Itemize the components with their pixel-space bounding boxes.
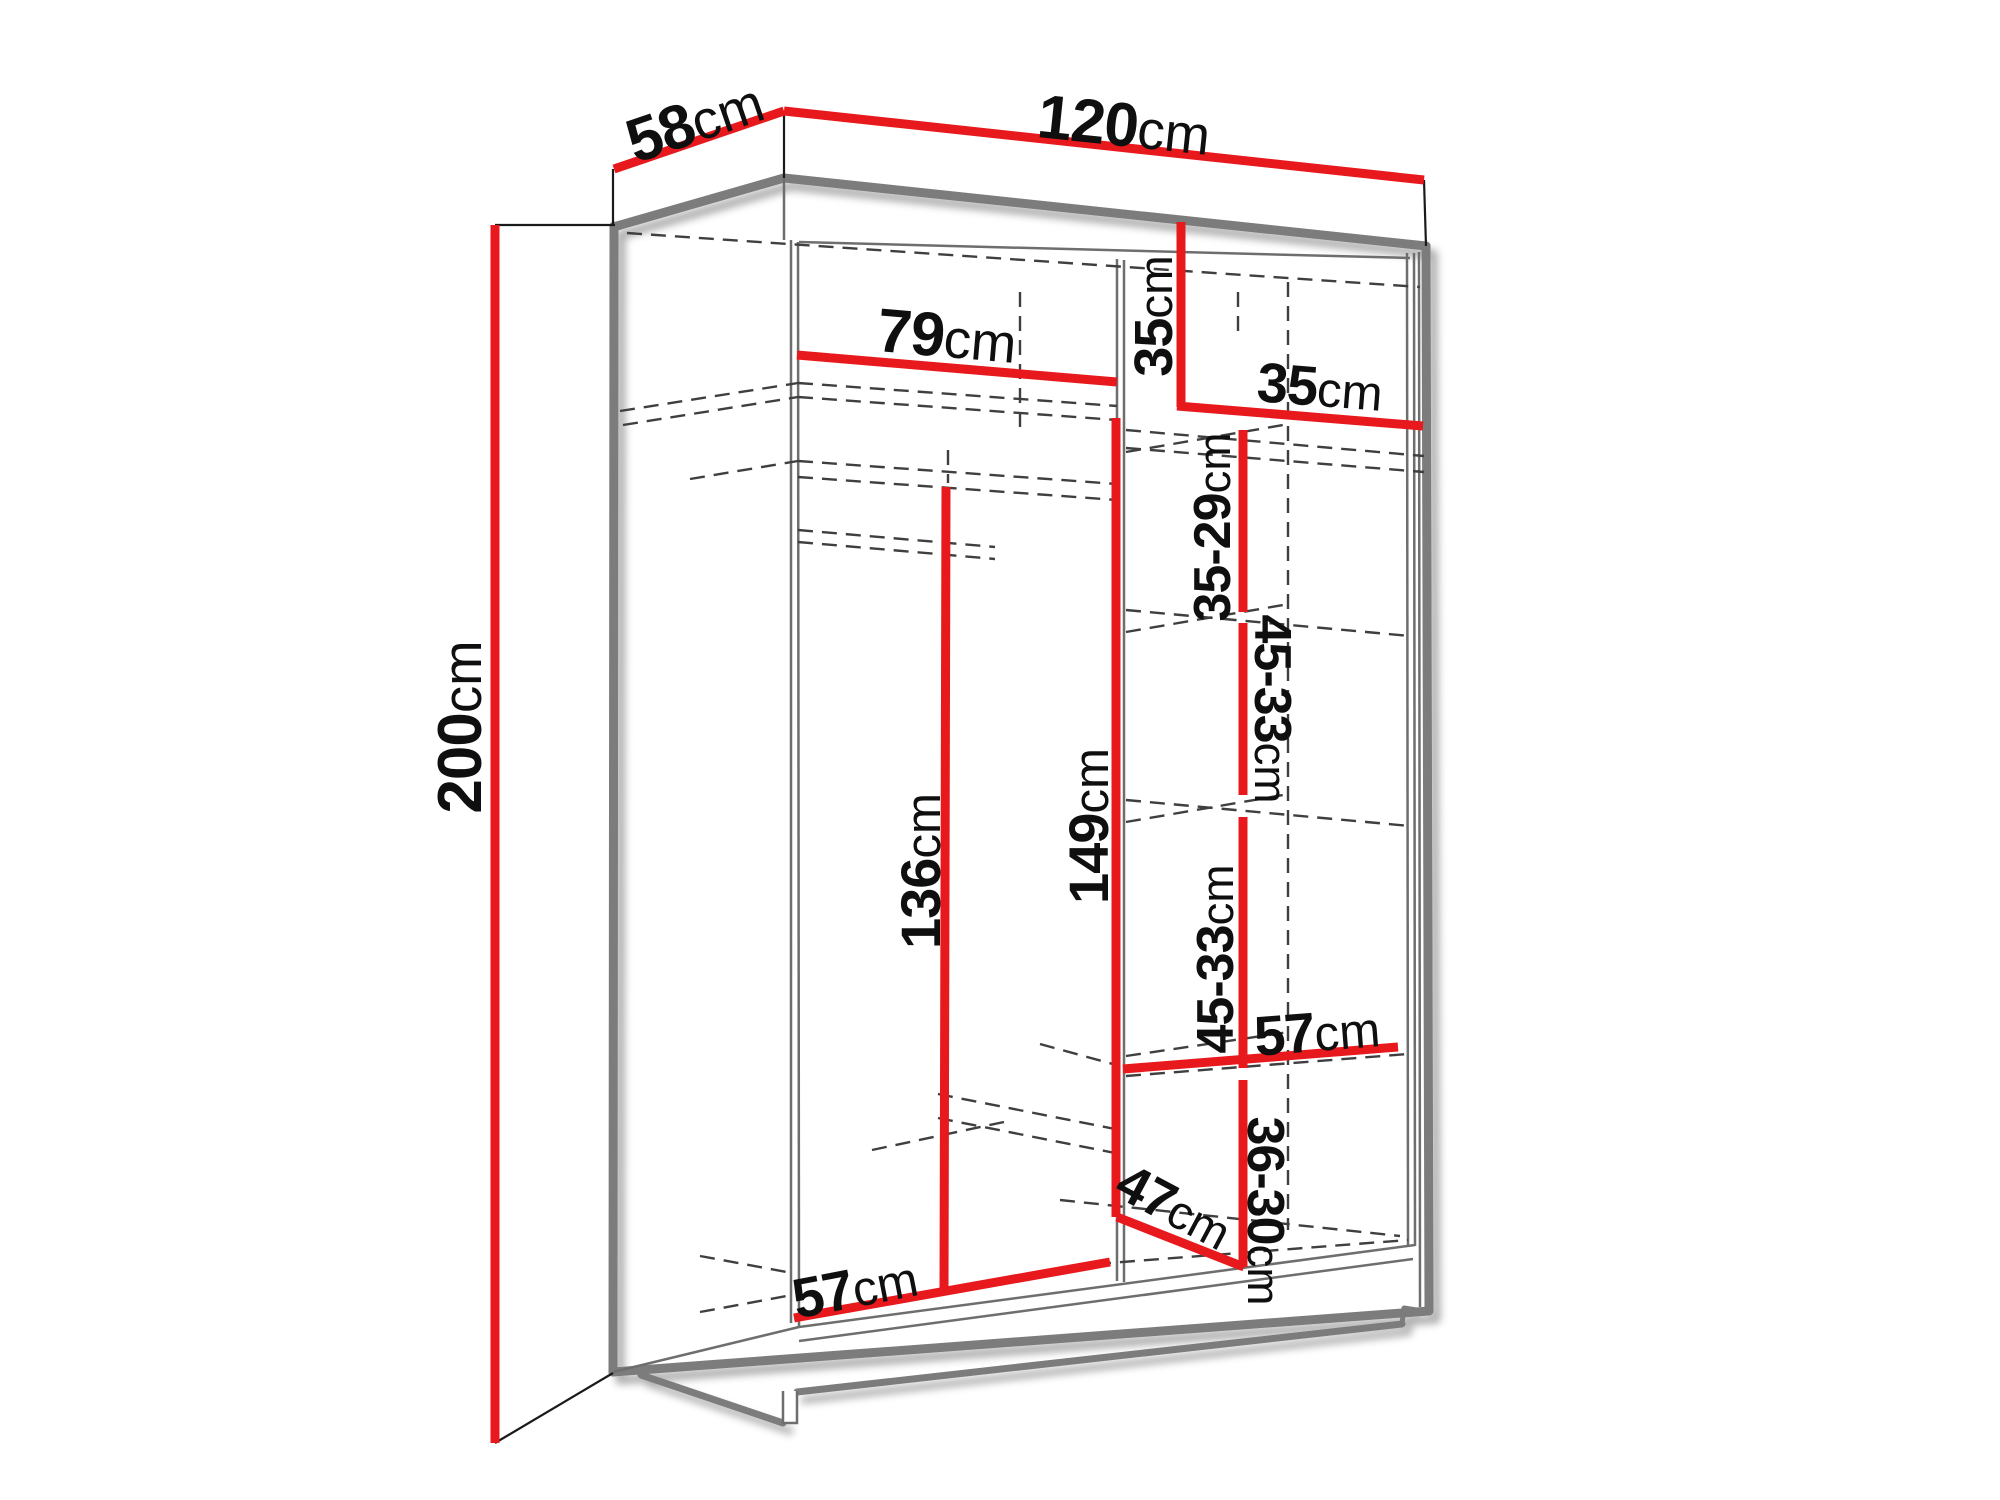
hidden-shelf-line: [798, 397, 1117, 420]
plinth-left-foot: [783, 1391, 797, 1423]
top-edge: [617, 178, 1426, 246]
hidden-shelf-line: [798, 461, 1117, 484]
dimension-unit: cm: [1130, 255, 1183, 318]
hidden-shelf-line: [798, 383, 1117, 406]
dimension-label-d35h: 35cm: [1255, 354, 1385, 420]
wardrobe-dimension-diagram: 120cm58cm200cm79cm35cm35cm35-29cm45-33cm…: [0, 0, 2000, 1500]
dimension-label-d35v: 35cm: [1127, 255, 1181, 376]
front-left-edge: [613, 226, 614, 1372]
dimension-value: 120: [1034, 82, 1141, 161]
dimension-unit: cm: [1064, 748, 1119, 814]
dimension-value: 45-33: [1243, 615, 1301, 743]
dimension-unit: cm: [1312, 1002, 1382, 1062]
right-edge-inner-line: [1419, 252, 1420, 1307]
dimension-value: 45-33: [1187, 926, 1245, 1054]
dimension-value: 36-30: [1236, 1117, 1294, 1245]
dimension-unit: cm: [1192, 865, 1243, 926]
right-inner-wall-edge: [1414, 253, 1415, 1246]
hidden-top-back-edge: [627, 233, 1420, 287]
dimension-label-d3630: 36-30cm: [1239, 1117, 1291, 1306]
dimension-value: 35-29: [1184, 494, 1242, 622]
dimension-value: 57: [1252, 1000, 1317, 1068]
dimension-unit: cm: [1245, 743, 1296, 804]
dimension-unit: cm: [1189, 433, 1240, 494]
dimension-label-d3529: 35-29cm: [1187, 433, 1239, 622]
dimension-value: 200: [426, 713, 495, 813]
front-right-edge: [1426, 246, 1429, 1311]
connector-120: [1424, 180, 1426, 246]
plinth-left-cutout: [641, 1375, 783, 1423]
dimension-label-d200: 200cm: [430, 640, 492, 813]
hidden-shelf-line: [1126, 800, 1410, 826]
hidden-shelf-side-line: [690, 461, 798, 479]
dimension-label-d57mid: 57cm: [1252, 999, 1382, 1065]
hidden-shelf-depth-line: [872, 1122, 1004, 1150]
dimension-label-d79: 79cm: [875, 300, 1020, 374]
dimension-value: 35: [1124, 319, 1184, 377]
dimension-unit: cm: [941, 308, 1019, 375]
dimension-label-d4533b: 45-33cm: [1190, 865, 1242, 1054]
dimension-unit: cm: [1134, 99, 1213, 167]
dimension-label-d149: 149cm: [1061, 748, 1117, 904]
dimension-label-d136: 136cm: [893, 793, 949, 949]
hidden-wall-stub: [700, 1295, 792, 1312]
left-inner-wall-edge: [798, 242, 799, 1327]
dimension-value: 35: [1255, 350, 1320, 418]
dimension-unit: cm: [432, 640, 493, 713]
dimension-unit: cm: [1315, 362, 1385, 422]
dimension-value: 149: [1057, 814, 1120, 904]
dimension-unit: cm: [896, 793, 951, 859]
hidden-shelf-line: [1126, 430, 1424, 456]
right-inner-wall-edge: [1407, 253, 1408, 1247]
dimension-value: 136: [889, 859, 952, 949]
connector-200-bottom: [495, 1373, 613, 1443]
hidden-shelf-side-line: [620, 383, 798, 411]
dimension-unit: cm: [1238, 1245, 1289, 1306]
diagram-line-art: [0, 0, 2000, 1500]
hidden-wall-stub: [700, 1256, 792, 1273]
dimension-value: 79: [874, 296, 947, 371]
hidden-shelf-stub: [1040, 1044, 1120, 1066]
hidden-shelf-side-line: [623, 397, 798, 425]
dimension-label-d4533a: 45-33cm: [1246, 615, 1298, 804]
